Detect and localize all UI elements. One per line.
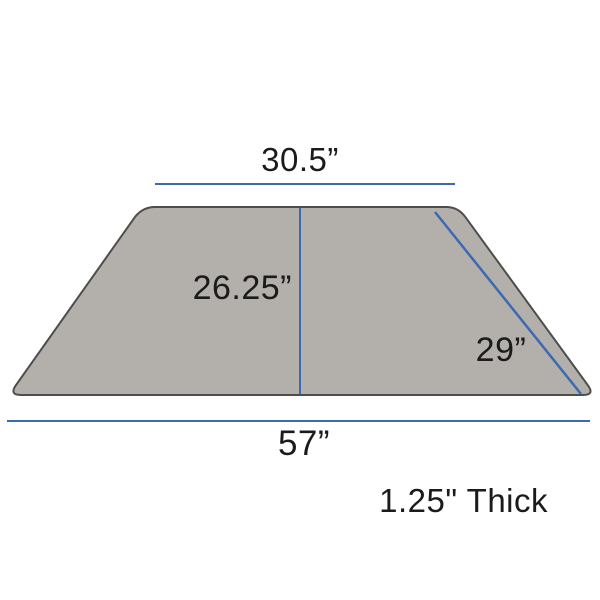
bottom-width-label: 57” [229, 425, 379, 464]
side-length-label: 29” [455, 332, 547, 369]
top-width-label: 30.5” [150, 142, 450, 178]
height-label: 26.25” [148, 270, 292, 307]
product-dimension-diagram: 30.5” 26.25” 29” 57” 1.25" Thick [0, 0, 600, 600]
thickness-label: 1.25" Thick [348, 483, 548, 519]
